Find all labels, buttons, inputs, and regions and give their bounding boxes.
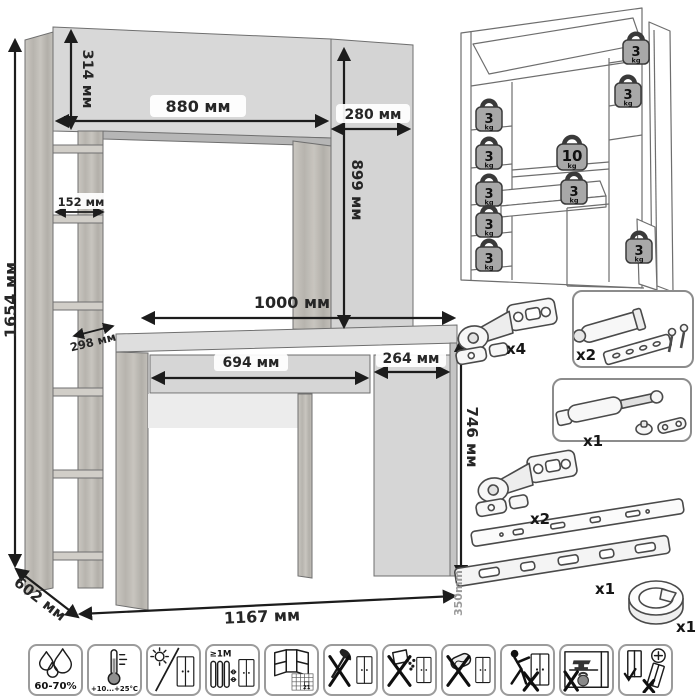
svg-text:60-70%: 60-70% bbox=[34, 681, 76, 692]
humidity-icon: 60-70% bbox=[28, 644, 83, 696]
wardrobe-glyph bbox=[239, 660, 254, 687]
gas-lift-qty-label: x1 bbox=[583, 432, 603, 450]
dim-drawer-width: 694 мм bbox=[223, 355, 280, 371]
desk-back-panel bbox=[148, 394, 298, 428]
svg-text:kg: kg bbox=[570, 197, 579, 205]
no-sharp-tools-icon bbox=[323, 644, 378, 696]
shelf bbox=[53, 470, 103, 478]
shelf bbox=[53, 215, 103, 223]
svg-text:kg: kg bbox=[632, 57, 641, 65]
svg-text:kg: kg bbox=[485, 162, 494, 170]
dim-hutch-side-width: 280 мм bbox=[345, 107, 402, 123]
damper-qty-label: x2 bbox=[576, 346, 596, 364]
pedestal-side-panel bbox=[298, 394, 312, 578]
anti-tip-icon bbox=[618, 644, 673, 696]
svg-text:kg: kg bbox=[485, 230, 494, 238]
dim-shelf-width: 152 мм bbox=[58, 195, 105, 209]
svg-text:kg: kg bbox=[568, 162, 577, 170]
svg-text:≥1М: ≥1М bbox=[210, 650, 232, 660]
no-direct-sunlight-icon bbox=[146, 644, 201, 696]
svg-text:+10...+25°C: +10...+25°C bbox=[91, 685, 138, 693]
person-glyph bbox=[511, 650, 529, 684]
shelf bbox=[53, 388, 103, 396]
dim-desktop-width: 1000 мм bbox=[254, 293, 330, 312]
furniture-infographic: 1654 мм 314 мм 880 мм 280 мм 899 мм 152 … bbox=[0, 0, 700, 700]
dim-hutch-side-height: 899 мм bbox=[348, 159, 366, 220]
grommet-qty-label: x1 bbox=[676, 618, 696, 636]
hinge-qty-label: x4 bbox=[506, 340, 526, 358]
kettlebell-glyph bbox=[578, 673, 589, 686]
slides-qty-label: x1 bbox=[595, 580, 615, 598]
pedestal-door bbox=[374, 355, 450, 576]
shelf bbox=[53, 552, 103, 560]
no-dragging-icon bbox=[500, 644, 555, 696]
dim-total-width: 1167 мм bbox=[223, 605, 300, 628]
svg-text:21: 21 bbox=[303, 685, 311, 691]
hinge2-qty-label: x2 bbox=[530, 510, 550, 528]
desktop-panel bbox=[116, 325, 457, 352]
slide-length-label: 350mm bbox=[452, 570, 465, 616]
svg-text:kg: kg bbox=[635, 256, 644, 264]
wardrobe-glyph bbox=[177, 657, 194, 686]
wardrobe-glyph bbox=[417, 657, 431, 682]
wardrobe-glyph bbox=[476, 657, 490, 682]
dim-pedestal-width: 264 мм bbox=[383, 351, 440, 367]
load-capacity-drawing: 3 kg 3 kg 3 kg 3 kg 3 kg 3 kg bbox=[437, 0, 700, 302]
care-icons-row: 60-70% +10...+25°C bbox=[28, 644, 673, 696]
left-upright-panel bbox=[25, 32, 53, 594]
furniture-dimensions-drawing: 1654 мм 314 мм 880 мм 280 мм 899 мм 152 … bbox=[0, 0, 480, 645]
temperature-icon: +10...+25°C bbox=[87, 644, 142, 696]
anvil-glyph bbox=[573, 660, 591, 670]
no-wet-cloth-icon bbox=[441, 644, 496, 696]
dim-total-height: 1654 мм bbox=[1, 262, 20, 338]
wardrobe-glyph bbox=[531, 654, 549, 685]
svg-text:kg: kg bbox=[624, 100, 633, 108]
hardware-section: 350mm x4 x2 x1 x2 x1 x1 bbox=[440, 288, 700, 648]
screw-icon bbox=[669, 325, 688, 353]
shelf bbox=[53, 145, 103, 153]
heat-source-distance-icon: ≥1М bbox=[205, 644, 260, 696]
no-overloading-icon bbox=[559, 644, 614, 696]
dim-hutch-height: 314 мм bbox=[79, 49, 95, 108]
dim-hutch-width: 880 мм bbox=[165, 97, 230, 116]
svg-text:kg: kg bbox=[485, 124, 494, 132]
ventilation-icon: 21 bbox=[264, 644, 319, 696]
svg-text:kg: kg bbox=[485, 264, 494, 272]
desk-left-panel bbox=[116, 352, 148, 610]
no-abrasives-icon bbox=[382, 644, 437, 696]
wardrobe-glyph bbox=[357, 657, 372, 684]
shelf bbox=[53, 302, 103, 310]
gas-lift-box bbox=[552, 378, 692, 442]
gas-lift-item bbox=[554, 380, 690, 440]
